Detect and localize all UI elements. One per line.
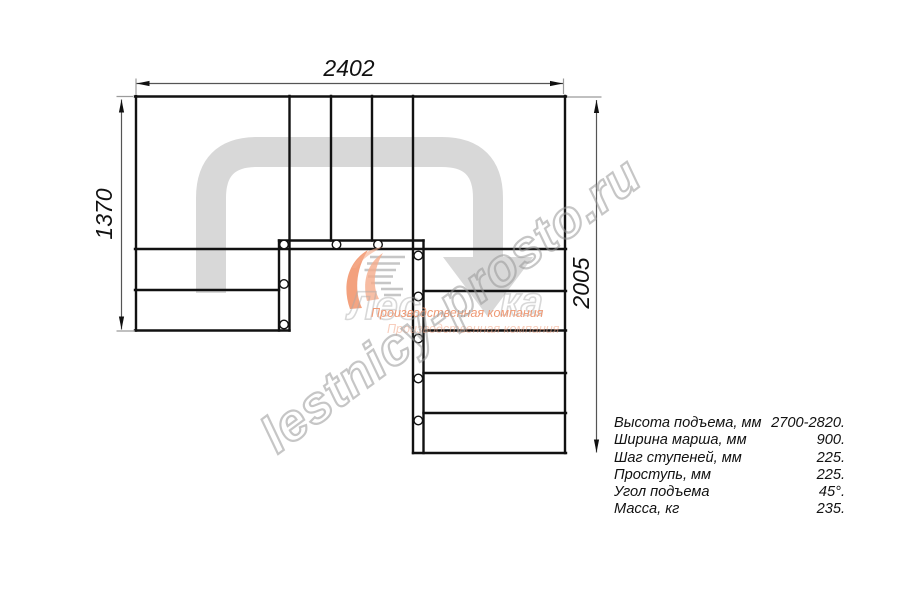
route-arrowhead-icon <box>443 257 533 317</box>
fastener-circle <box>414 251 423 260</box>
fastener-circle <box>280 320 289 329</box>
arrow-icon <box>594 440 599 453</box>
arrow-icon <box>119 100 124 113</box>
spec-label: Угол подъема <box>614 484 709 501</box>
fastener-circle <box>332 240 341 249</box>
spec-value: 900. <box>817 432 845 449</box>
stair-drawing-page: 2402 1370 2005 Лес ка Производственная к… <box>0 0 900 600</box>
dim-value-width: 2402 <box>297 54 401 82</box>
fastener-circle <box>414 374 423 383</box>
fastener-circle <box>280 280 289 289</box>
spec-label: Проступь, мм <box>614 467 711 484</box>
spec-value: 225. <box>817 450 845 467</box>
spec-label: Высота подъема, мм <box>614 415 762 432</box>
dim-value-left-height: 1370 <box>90 159 118 269</box>
company-logo <box>346 247 405 309</box>
arrow-icon <box>550 81 563 86</box>
spec-label: Шаг ступеней, мм <box>614 450 742 467</box>
table-row: Масса, кг 235. <box>614 501 845 518</box>
arrow-icon <box>594 100 599 113</box>
fastener-circle <box>414 292 423 301</box>
table-row: Угол подъема 45°. <box>614 484 845 501</box>
fastener-circle <box>414 416 423 425</box>
spec-value: 225. <box>817 467 845 484</box>
table-row: Проступь, мм 225. <box>614 467 845 484</box>
spec-label: Ширина марша, мм <box>614 432 747 449</box>
arrow-icon <box>137 81 150 86</box>
table-row: Высота подъема, мм 2700-2820. <box>614 415 845 432</box>
fastener-circle <box>280 240 289 249</box>
table-row: Ширина марша, мм 900. <box>614 432 845 449</box>
table-row: Шаг ступеней, мм 225. <box>614 450 845 467</box>
spec-value: 45°. <box>819 484 845 501</box>
arrow-icon <box>119 317 124 330</box>
specs-table: Высота подъема, мм 2700-2820. Ширина мар… <box>614 415 845 519</box>
spec-value: 2700-2820. <box>771 415 845 432</box>
spec-value: 235. <box>817 501 845 518</box>
dim-value-right-height: 2005 <box>567 228 595 338</box>
spec-label: Масса, кг <box>614 501 679 518</box>
fastener-circle <box>414 334 423 343</box>
